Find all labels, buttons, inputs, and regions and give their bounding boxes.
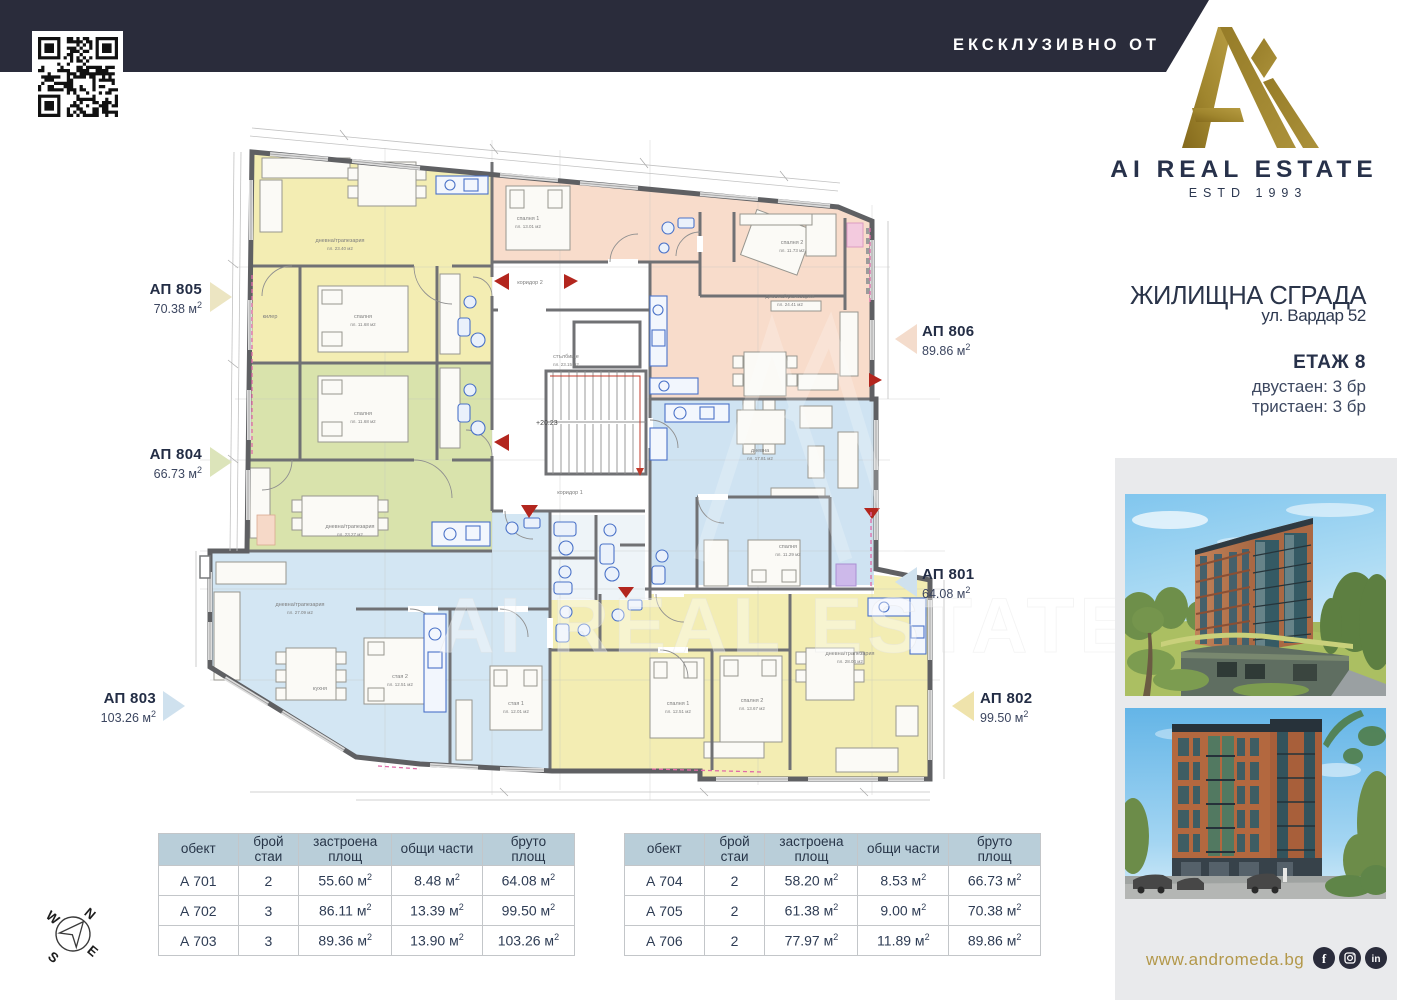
svg-text:пл. 12.51 м2: пл. 12.51 м2 bbox=[665, 709, 691, 714]
svg-text:пл. 12.51 м2: пл. 12.51 м2 bbox=[387, 682, 413, 687]
svg-text:спалня 2: спалня 2 bbox=[741, 698, 764, 704]
svg-text:спалня: спалня bbox=[354, 411, 372, 417]
svg-text:пл. 13.01 м2: пл. 13.01 м2 bbox=[515, 224, 541, 229]
svg-text:in: in bbox=[1372, 954, 1381, 965]
svg-text:спалня 1: спалня 1 bbox=[667, 701, 690, 707]
svg-text:пл. 17.81 м2: пл. 17.81 м2 bbox=[747, 456, 773, 461]
svg-text:f: f bbox=[1322, 951, 1327, 966]
svg-text:стълбище: стълбище bbox=[553, 354, 579, 360]
svg-text:дневна/трапезария: дневна/трапезария bbox=[275, 602, 324, 608]
svg-text:коридор 2: коридор 2 bbox=[517, 280, 543, 286]
svg-text:коридор 1: коридор 1 bbox=[557, 490, 583, 496]
svg-text:пл. 24.41 м2: пл. 24.41 м2 bbox=[777, 302, 803, 307]
svg-text:пл. 11.68 м2: пл. 11.68 м2 bbox=[350, 322, 376, 327]
svg-text:пл. 11.68 м2: пл. 11.68 м2 bbox=[350, 419, 376, 424]
svg-text:S: S bbox=[45, 949, 62, 966]
svg-text:спалня 2: спалня 2 bbox=[781, 240, 804, 246]
svg-text:дневна/трапезария: дневна/трапезария bbox=[325, 524, 374, 530]
svg-text:пл. 11.29 м2: пл. 11.29 м2 bbox=[775, 552, 801, 557]
svg-text:спалня: спалня bbox=[779, 544, 797, 550]
svg-text:дневна: дневна bbox=[751, 448, 770, 454]
svg-text:стая 1: стая 1 bbox=[508, 701, 524, 707]
svg-text:пл. 27.09 м2: пл. 27.09 м2 bbox=[287, 610, 313, 615]
svg-text:пл. 13.67 м2: пл. 13.67 м2 bbox=[739, 706, 765, 711]
svg-text:килер: килер bbox=[263, 314, 278, 320]
svg-text:пл. 12.01 м2: пл. 12.01 м2 bbox=[503, 709, 529, 714]
svg-text:пл. 11.73 м2: пл. 11.73 м2 bbox=[779, 248, 805, 253]
svg-text:дневна/трапезария: дневна/трапезария bbox=[765, 294, 814, 300]
svg-text:пл. 23.15 м2: пл. 23.15 м2 bbox=[553, 362, 579, 367]
svg-text:дневна/трапезария: дневна/трапезария bbox=[315, 238, 364, 244]
svg-text:спалня: спалня bbox=[354, 314, 372, 320]
svg-text:спалня 1: спалня 1 bbox=[517, 216, 540, 222]
svg-text:пл. 23.40 м2: пл. 23.40 м2 bbox=[327, 246, 353, 251]
svg-text:кухня: кухня bbox=[313, 686, 327, 692]
svg-text:N: N bbox=[81, 905, 98, 923]
svg-text:пл. 23.27 м2: пл. 23.27 м2 bbox=[337, 532, 363, 537]
svg-text:W: W bbox=[43, 908, 63, 928]
svg-text:+20.23: +20.23 bbox=[536, 420, 558, 427]
svg-text:стая 2: стая 2 bbox=[392, 674, 408, 680]
